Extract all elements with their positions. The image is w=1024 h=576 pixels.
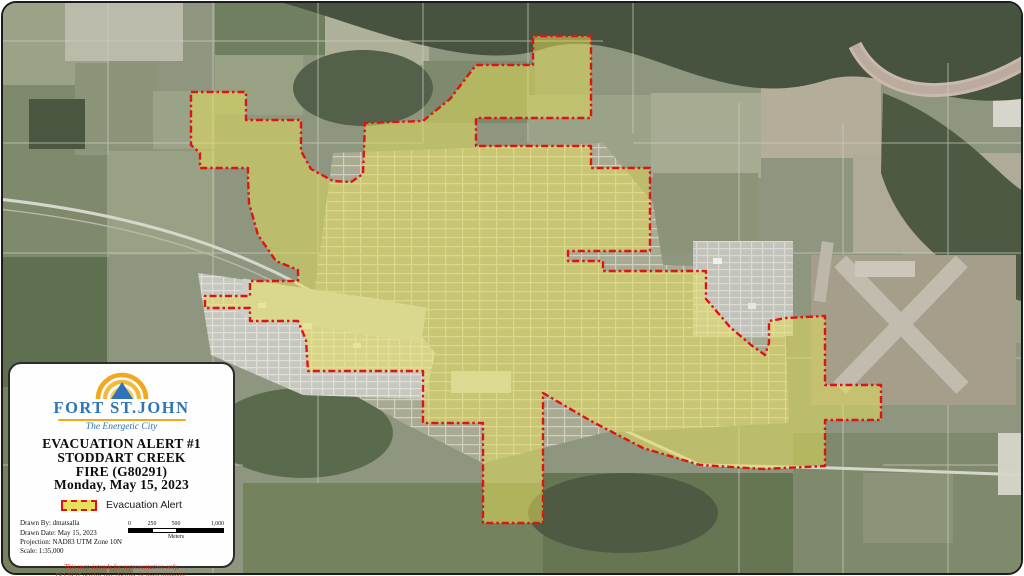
map-title: EVACUATION ALERT #1 STODDART CREEK FIRE … bbox=[42, 437, 201, 492]
scale-tick-0: 0 bbox=[128, 521, 131, 527]
scale-tick-250: 250 bbox=[148, 521, 157, 527]
title-line-4: Monday, May 15, 2023 bbox=[42, 478, 201, 492]
credit-drawn-date: Drawn Date: May 15, 2023 bbox=[20, 529, 122, 538]
airport-runways bbox=[811, 241, 1016, 405]
evacuation-alert-legend-swatch bbox=[61, 500, 97, 511]
scale-bar-ticks: 0 250 500 1,000 bbox=[128, 521, 224, 528]
disclaimer-line-1: This map intends for representation only… bbox=[55, 563, 187, 572]
scale-bar-graphic bbox=[128, 528, 224, 533]
logo-tagline: The Energetic City bbox=[86, 423, 157, 433]
credit-scale: Scale: 1:35,000 bbox=[20, 547, 122, 556]
map-disclaimer: This map intends for representation only… bbox=[55, 563, 187, 576]
map-credits: Drawn By: dmatsalla Drawn Date: May 15, … bbox=[20, 519, 122, 557]
fort-st-john-logo: FORT ST.JOHN The Energetic City bbox=[54, 369, 190, 432]
scale-tick-500: 500 bbox=[172, 521, 181, 527]
credit-projection: Projection: NAD83 UTM Zone 10N bbox=[20, 538, 122, 547]
evacuation-alert-map-page: FORT ST.JOHN The Energetic City EVACUATI… bbox=[0, 0, 1024, 576]
scale-bar: 0 250 500 1,000 Meters bbox=[128, 521, 224, 557]
legend: Evacuation Alert bbox=[61, 499, 182, 511]
logo-divider bbox=[58, 419, 186, 421]
scale-bar-unit: Meters bbox=[128, 534, 224, 540]
title-line-2: STODDART CREEK bbox=[42, 451, 201, 465]
map-metadata-row: Drawn By: dmatsalla Drawn Date: May 15, … bbox=[10, 519, 233, 557]
map-info-box: FORT ST.JOHN The Energetic City EVACUATI… bbox=[8, 362, 235, 568]
title-line-1: EVACUATION ALERT #1 bbox=[42, 437, 201, 451]
logo-city-name: FORT ST.JOHN bbox=[54, 400, 190, 417]
scale-tick-1000: 1,000 bbox=[211, 521, 224, 527]
disclaimer-line-2: DO NOT use for any designs or measuremen… bbox=[55, 572, 187, 576]
title-line-3: FIRE (G80291) bbox=[42, 465, 201, 479]
sunrise-arcs-icon bbox=[93, 369, 151, 399]
evacuation-alert-legend-label: Evacuation Alert bbox=[106, 499, 182, 511]
credit-drawn-by: Drawn By: dmatsalla bbox=[20, 519, 122, 528]
